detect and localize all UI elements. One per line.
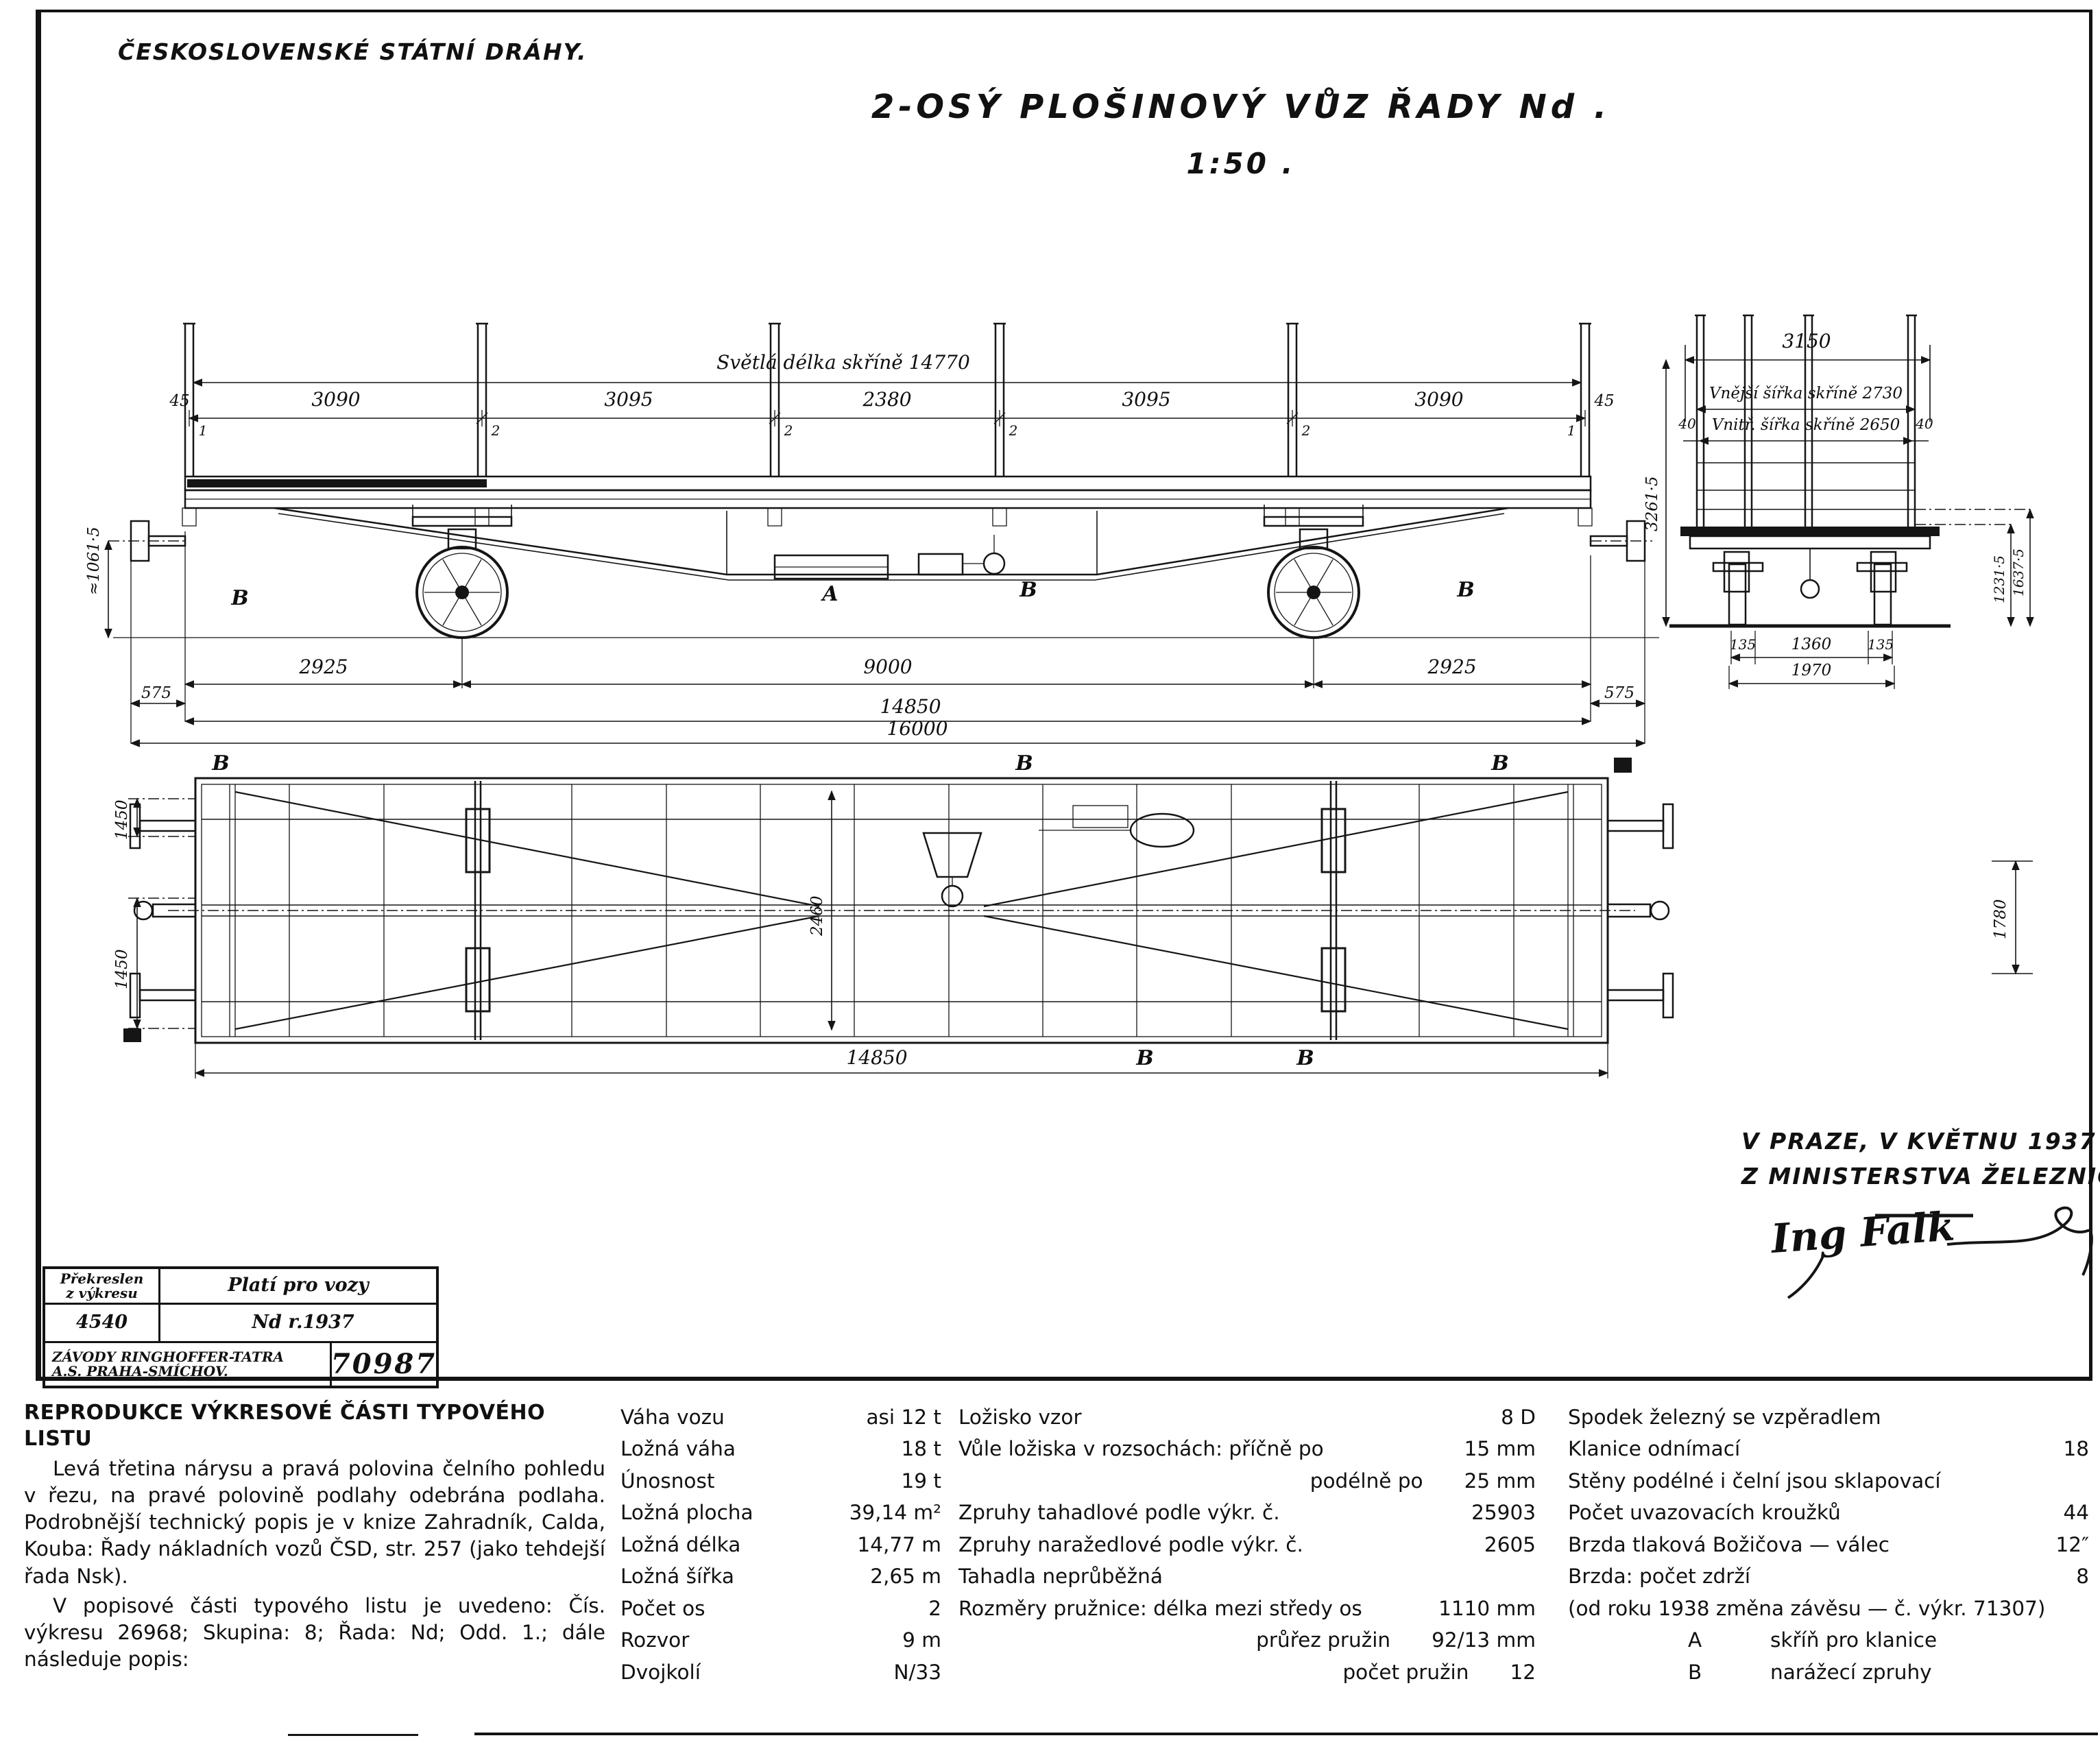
stamp-redrawn-line2: z výkresu: [66, 1286, 137, 1301]
note-paragraph-1: Levá třetina nárysu a pravá polovina čel…: [24, 1456, 605, 1590]
stamp-serial-number-cell: 70987: [332, 1343, 436, 1386]
spec-label: počet pružin: [1342, 1656, 1469, 1688]
spec-label: Počet os: [620, 1593, 705, 1624]
spec-row: podélně po25 mm: [958, 1465, 1536, 1497]
drawing-title: 2-OSÝ PLOŠINOVÝ VŮZ ŘADY Nd .: [871, 88, 1611, 126]
dim-axle-offset-right: 2925: [1427, 655, 1476, 678]
approval-block: V PRAZE, V KVĚTNU 1937 . Z MINISTERSTVA …: [1741, 1128, 2098, 1302]
spec-label: Stěny podélné i čelní jsou sklapovací: [1568, 1465, 1941, 1497]
stamp-valid-for-cell: Platí pro vozy: [160, 1269, 436, 1305]
drawing-stamp-table: Překreslen z výkresu Platí pro vozy 4540…: [43, 1266, 439, 1388]
spec-row: Únosnost19 t: [620, 1465, 941, 1497]
spec-row: Vůle ložiska v rozsochách: příčně po15 m…: [958, 1433, 1536, 1464]
dim-buffer-height: ≈1061·5: [85, 527, 103, 595]
spec-row: Stěny podélné i čelní jsou sklapovací: [1568, 1465, 2089, 1497]
letter-b-marker: B: [1015, 751, 1033, 775]
stanchion-mark-6: 1: [1567, 422, 1576, 439]
spec-row: Brzda: počet zdrží8: [1568, 1560, 2089, 1592]
side-elevation-view: Světlá délka skříně 14770 45 3090 3095 2…: [75, 288, 1666, 761]
spec-label: Rozměry pružnice: délka mezi středy os: [958, 1593, 1362, 1624]
dim-buffer-overhang-right: 575: [1604, 684, 1634, 702]
spec-label: Zpruhy naražedlové podle výkr. č.: [958, 1529, 1303, 1560]
stanchion-mark-5: 2: [1301, 422, 1311, 439]
stanchion-mark-3: 2: [784, 422, 793, 439]
end-lower-dimensions: 135 1360 135 1970: [1729, 631, 1894, 689]
spec-column-gear: Ložisko vzor8 D Vůle ložiska v rozsochác…: [958, 1401, 1536, 1688]
drawing-scale: 1:50 .: [871, 147, 1611, 180]
spec-label: Ložná šířka: [620, 1560, 734, 1592]
spec-value: 12: [1510, 1656, 1536, 1688]
spec-row: Ložisko vzor8 D: [958, 1401, 1536, 1433]
spec-value: 25903: [1471, 1497, 1536, 1528]
end-top-dimension: 3150: [1685, 330, 1930, 422]
spec-column-weights: Váha vozuasi 12 t Ložná váha18 t Únosnos…: [620, 1401, 941, 1688]
spec-value: 39,14 m²: [849, 1497, 941, 1528]
dim-half-width-bottom: 1450: [113, 949, 131, 989]
dim-wall-height: 1637·5: [2010, 548, 2027, 596]
stamp-manufacturer-line2: A.S. PRAHA-SMÍCHOV.: [52, 1364, 228, 1379]
letter-b-marker: B: [1135, 1046, 1153, 1070]
dim-wheelbase: 9000: [863, 655, 912, 678]
spec-label: Únosnost: [620, 1465, 714, 1497]
spec-label: Dvojkolí: [620, 1656, 701, 1688]
spec-label: podélně po: [1310, 1465, 1423, 1497]
spec-label: Spodek železný se vzpěradlem: [1568, 1401, 1881, 1433]
stamp-redrawn-cell: Překreslen z výkresu: [45, 1269, 160, 1305]
stanchion-mark-2: 2: [491, 422, 500, 439]
note-heading: REPRODUKCE VÝKRESOVÉ ČÁSTI TYPOVÉHO LIST…: [24, 1400, 605, 1453]
spec-legend-row-a: Askříň pro klanice: [1568, 1624, 2089, 1656]
spec-row: Tahadla neprůběžná: [958, 1560, 1536, 1592]
dim-inner-width: Vnitř. šířka skříně 2650: [1712, 416, 1900, 434]
spec-row: Zpruhy naražedlové podle výkr. č.2605: [958, 1529, 1536, 1560]
spec-label: Vůle ložiska v rozsochách: příčně po: [958, 1433, 1324, 1464]
spec-label: Váha vozu: [620, 1401, 725, 1433]
dim-half-width-top: 1450: [113, 799, 131, 840]
dim-segment-1: 3090: [311, 388, 360, 411]
spec-value: 92/13 mm: [1432, 1624, 1536, 1656]
side-top-dimensions: Světlá délka skříně 14770 45 3090 3095 2…: [169, 351, 1614, 439]
dim-segment-2: 3095: [604, 388, 653, 411]
letter-b-marker: B: [230, 586, 248, 610]
dim-buffer-overhang-left: 575: [141, 684, 171, 702]
spec-value: 2605: [1484, 1529, 1536, 1560]
end-running-gear: [1669, 548, 1951, 626]
spec-row: Rozměry pružnice: délka mezi středy os11…: [958, 1593, 1536, 1624]
spec-row: Ložná délka14,77 m: [620, 1529, 941, 1560]
spec-column-body: Spodek železný se vzpěradlem Klanice odn…: [1568, 1401, 2089, 1688]
stamp-drawing-number-cell: 4540: [45, 1305, 160, 1343]
dim-spring-centres: 1360: [1791, 636, 1832, 653]
spec-value: 12″: [2055, 1529, 2089, 1560]
side-truss-and-brake-gear: [274, 508, 1508, 580]
dim-lower-span: 1970: [1791, 662, 1832, 679]
spec-label: Zpruhy tahadlové podle výkr. č.: [958, 1497, 1280, 1528]
spec-row: Rozvor9 m: [620, 1624, 941, 1656]
letter-a-marker: A: [820, 582, 838, 606]
spec-label: Brzda: počet zdrží: [1568, 1560, 1750, 1592]
dim-outer-width: Vnější šířka skříně 2730: [1709, 385, 1903, 402]
stamp-manufacturer-cell: ZÁVODY RINGHOFFER-TATRA A.S. PRAHA-SMÍCH…: [45, 1343, 332, 1386]
spec-value: asi 12 t: [866, 1401, 941, 1433]
dim-segment-3: 2380: [862, 388, 911, 411]
spec-label: Ložná délka: [620, 1529, 740, 1560]
spec-value: 14,77 m: [857, 1529, 941, 1560]
spec-value: 25 mm: [1464, 1465, 1536, 1497]
spec-value: 8 D: [1501, 1401, 1536, 1433]
dim-clear-length: Světlá délka skříně 14770: [716, 351, 970, 374]
letter-b-marker: B: [1490, 751, 1508, 775]
dim-segment-5: 3090: [1414, 388, 1463, 411]
spec-value: 8: [2076, 1560, 2089, 1592]
spec-value: N/33: [893, 1656, 941, 1688]
dim-plan-right: 1780: [1992, 899, 2010, 939]
spec-label: Brzda tlaková Božičova — válec: [1568, 1529, 1890, 1560]
spec-row: Zpruhy tahadlové podle výkr. č.25903: [958, 1497, 1536, 1528]
spec-value: 2,65 m: [870, 1560, 941, 1592]
stamp-manufacturer-line1: ZÁVODY RINGHOFFER-TATRA: [52, 1350, 284, 1364]
note-paragraph-2: V popisové části typového listu je uvede…: [24, 1593, 605, 1674]
end-view: 3150 Vnější šířka skříně 2730 Vnitř. šíř…: [1642, 257, 2098, 737]
spec-row: Ložná plocha39,14 m²: [620, 1497, 941, 1528]
dim-end-top-width: 3150: [1782, 330, 1831, 352]
plan-view: 1450 1450 14850 2460 1780 B B B B B: [65, 737, 2095, 1128]
spec-row: Klanice odnímací18: [1568, 1433, 2089, 1464]
spec-value: 44: [2063, 1497, 2089, 1528]
typesheet-page: { "header": { "org": "ČESKOSLOVENSKÉ STÁ…: [0, 0, 2100, 1749]
letter-b-marker: B: [211, 751, 229, 775]
stamp-wagon-series-cell: Nd r.1937: [160, 1305, 436, 1343]
dim-wall-thickness-right: 40: [1915, 415, 1933, 432]
spec-label: Počet uvazovacích kroužků: [1568, 1497, 1841, 1528]
letter-b-marker: B: [1456, 578, 1474, 602]
spec-row: Váha vozuasi 12 t: [620, 1401, 941, 1433]
spec-value: 19 t: [902, 1465, 941, 1497]
plan-dimensions: 1450 1450 14850 2460 1780: [113, 791, 2033, 1078]
spec-row: Počet os2: [620, 1593, 941, 1624]
legend-letter: A: [1688, 1624, 1770, 1656]
plan-frame: [123, 758, 1635, 1043]
spec-row: (od roku 1938 změna závěsu — č. výkr. 71…: [1568, 1593, 2089, 1624]
spec-label: Ložná váha: [620, 1433, 736, 1464]
dim-segment-4: 3095: [1122, 388, 1170, 411]
reproduction-note: REPRODUKCE VÝKRESOVÉ ČÁSTI TYPOVÉHO LIST…: [24, 1400, 605, 1674]
spec-row: Ložná šířka2,65 m: [620, 1560, 941, 1592]
spec-value: 15 mm: [1464, 1433, 1536, 1464]
stamp-redrawn-line1: Překreslen: [60, 1272, 144, 1286]
dim-body-length: 14850: [880, 695, 941, 718]
side-buffer-height-dimension: ≈1061·5: [85, 527, 108, 638]
spec-value: 1110 mm: [1438, 1593, 1536, 1624]
dim-wall-thickness-left: 40: [1678, 415, 1696, 432]
dim-shackle-right: 135: [1868, 636, 1894, 653]
spec-row: počet pružin12: [958, 1656, 1536, 1688]
spec-label: Tahadla neprůběžná: [958, 1560, 1163, 1592]
spec-label: Rozvor: [620, 1624, 689, 1656]
dim-overhang-right: 45: [1593, 392, 1614, 410]
scan-artifact-line: [474, 1733, 2098, 1735]
dim-overhang-left: 45: [169, 392, 189, 410]
letter-b-marker: B: [1019, 578, 1037, 602]
spec-row: DvojkolíN/33: [620, 1656, 941, 1688]
spec-label: průřez pružin: [1256, 1624, 1390, 1656]
spec-label: Klanice odnímací: [1568, 1433, 1740, 1464]
signature: Ing Falk: [1741, 1190, 2100, 1299]
spec-label: (od roku 1938 změna závěsu — č. výkr. 71…: [1568, 1593, 2045, 1624]
spec-row: Spodek železný se vzpěradlem: [1568, 1401, 2089, 1433]
spec-label: Ložná plocha: [620, 1497, 753, 1528]
stanchion-mark-1: 1: [199, 422, 208, 439]
approval-place-date: V PRAZE, V KVĚTNU 1937 .: [1741, 1128, 2098, 1155]
spec-row: Počet uvazovacích kroužků44: [1568, 1497, 2089, 1528]
stanchion-mark-4: 2: [1009, 422, 1018, 439]
spec-row: Brzda tlaková Božičova — válec12″: [1568, 1529, 2089, 1560]
dim-floor-height: 1231·5: [1991, 555, 2007, 603]
legend-description: narážecí zpruhy: [1770, 1656, 1932, 1688]
spec-row: Ložná váha18 t: [620, 1433, 941, 1464]
dim-shackle-left: 135: [1730, 636, 1756, 653]
spec-label: Ložisko vzor: [958, 1401, 1082, 1433]
side-deck-and-sill: [185, 477, 1591, 508]
spec-legend-row-b: Bnarážecí zpruhy: [1568, 1656, 2089, 1688]
legend-letter: B: [1688, 1656, 1770, 1688]
scan-artifact-line: [288, 1734, 418, 1736]
spec-row: průřez pružin92/13 mm: [958, 1624, 1536, 1656]
title-block: 2-OSÝ PLOŠINOVÝ VŮZ ŘADY Nd . 1:50 .: [871, 88, 1611, 180]
dim-plan-body-length: 14850: [846, 1046, 907, 1069]
approval-authority: Z MINISTERSTVA ŽELEZNIC :: [1741, 1163, 2098, 1190]
spec-value: 2: [928, 1593, 941, 1624]
dim-total-height: 3261·5: [1643, 477, 1661, 531]
railway-company-name: ČESKOSLOVENSKÉ STÁTNÍ DRÁHY.: [118, 38, 588, 65]
spec-value: 18: [2063, 1433, 2089, 1464]
dim-axle-offset-left: 2925: [298, 655, 348, 678]
legend-description: skříň pro klanice: [1770, 1624, 1937, 1656]
letter-b-marker: B: [1296, 1046, 1314, 1070]
spec-value: 18 t: [902, 1433, 941, 1464]
signature-name: Ing Falk: [1768, 1203, 1956, 1262]
spec-value: 9 m: [902, 1624, 941, 1656]
dim-plan-centre-width: 2460: [808, 895, 826, 937]
